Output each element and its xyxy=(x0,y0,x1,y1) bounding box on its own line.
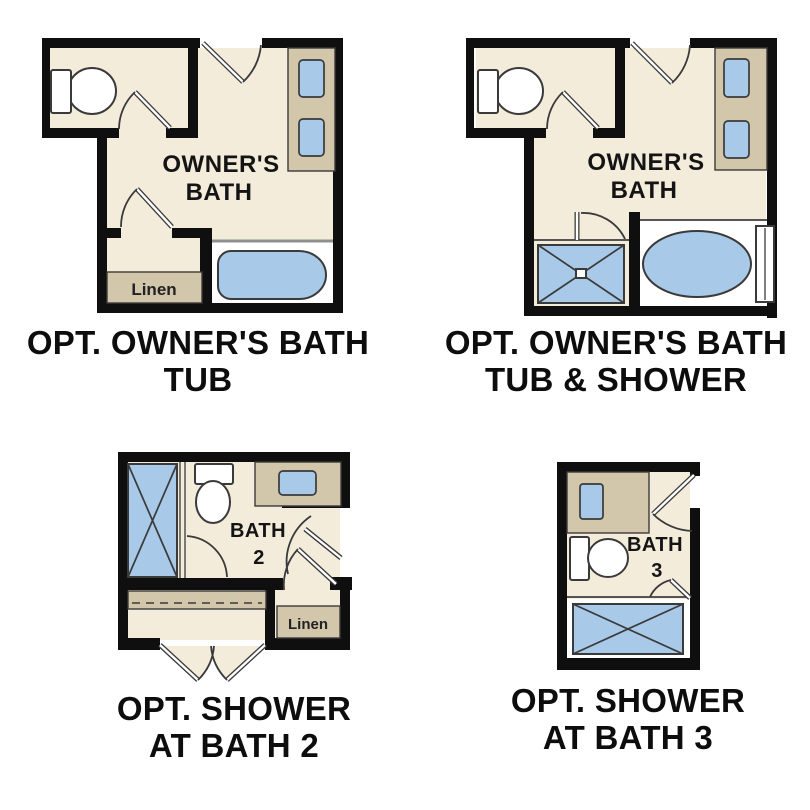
caption-bath3: OPT. SHOWER AT BATH 3 xyxy=(430,682,810,756)
sink xyxy=(724,121,749,158)
caption-line: OPT. SHOWER xyxy=(430,682,810,719)
wall xyxy=(524,306,777,316)
wall xyxy=(166,128,198,138)
wall xyxy=(593,128,625,138)
sink xyxy=(299,119,324,156)
toilet-tank xyxy=(478,70,498,113)
room-label: BATH xyxy=(230,520,286,542)
wall xyxy=(615,48,625,128)
wall xyxy=(118,638,160,650)
exterior-notch xyxy=(458,138,524,322)
room-label: BATH xyxy=(627,534,683,556)
wall xyxy=(690,508,700,670)
caption-line: OPT. OWNER'S BATH xyxy=(0,324,396,361)
floor-plan-bath2-shower: Linen BATH 2 xyxy=(118,452,352,681)
room-label: 2 xyxy=(253,547,265,569)
room-label: OWNER'S xyxy=(587,149,704,176)
caption-line: AT BATH 3 xyxy=(430,719,810,756)
wall xyxy=(97,228,121,238)
room-label: BATH xyxy=(611,177,678,204)
toilet-bowl xyxy=(68,68,116,114)
bathtub-oval xyxy=(643,231,751,297)
bathtub xyxy=(218,251,326,299)
wall xyxy=(118,452,128,650)
sink xyxy=(580,484,603,519)
wall xyxy=(557,658,700,670)
wall xyxy=(97,128,107,313)
room-label: OWNER'S xyxy=(162,151,279,178)
shower-drain xyxy=(576,269,586,278)
wall xyxy=(265,638,350,650)
sink xyxy=(724,59,749,97)
wall xyxy=(524,128,534,316)
caption-line: TUB xyxy=(0,361,396,398)
floor-plan-bath3-shower: BATH 3 xyxy=(557,462,700,670)
toilet-bowl xyxy=(196,481,230,523)
floor-plan-sheet: Linen OWNER'S BATH xyxy=(0,0,810,810)
toilet-bowl xyxy=(588,539,628,577)
wall xyxy=(690,462,700,476)
caption-line: OPT. OWNER'S BATH xyxy=(420,324,810,361)
wall xyxy=(188,48,198,128)
caption-bath2: OPT. SHOWER AT BATH 2 xyxy=(36,690,432,764)
caption-line: AT BATH 2 xyxy=(36,727,432,764)
wall xyxy=(118,452,350,462)
wall xyxy=(557,462,567,670)
wall xyxy=(262,38,343,48)
counter xyxy=(128,591,266,609)
wall xyxy=(466,38,474,138)
wall xyxy=(42,38,200,48)
room-label: 3 xyxy=(651,560,663,582)
wall xyxy=(118,578,283,590)
wall xyxy=(42,38,50,138)
floor-plan-owners-bath-tub: Linen OWNER'S BATH xyxy=(36,38,343,322)
exterior-notch xyxy=(36,138,97,322)
toilet-tank xyxy=(51,70,71,113)
caption-owners-bath-tub-shower: OPT. OWNER'S BATH TUB & SHOWER xyxy=(420,324,810,398)
wall xyxy=(466,38,630,48)
wall xyxy=(629,212,640,308)
caption-owners-bath-tub: OPT. OWNER'S BATH TUB xyxy=(0,324,396,398)
floor-plan-owners-bath-tub-shower: OWNER'S BATH xyxy=(458,38,777,322)
sink xyxy=(299,60,324,97)
toilet-tank xyxy=(570,537,589,580)
wall xyxy=(42,128,119,138)
linen-label: Linen xyxy=(131,280,176,299)
caption-line: OPT. SHOWER xyxy=(36,690,432,727)
linen-label: Linen xyxy=(288,616,328,633)
wall xyxy=(557,462,700,472)
wall xyxy=(690,38,777,48)
caption-line: TUB & SHOWER xyxy=(420,361,810,398)
sink xyxy=(279,471,316,495)
wall xyxy=(97,303,343,313)
toilet-bowl xyxy=(495,68,543,114)
room-label: BATH xyxy=(186,179,253,206)
